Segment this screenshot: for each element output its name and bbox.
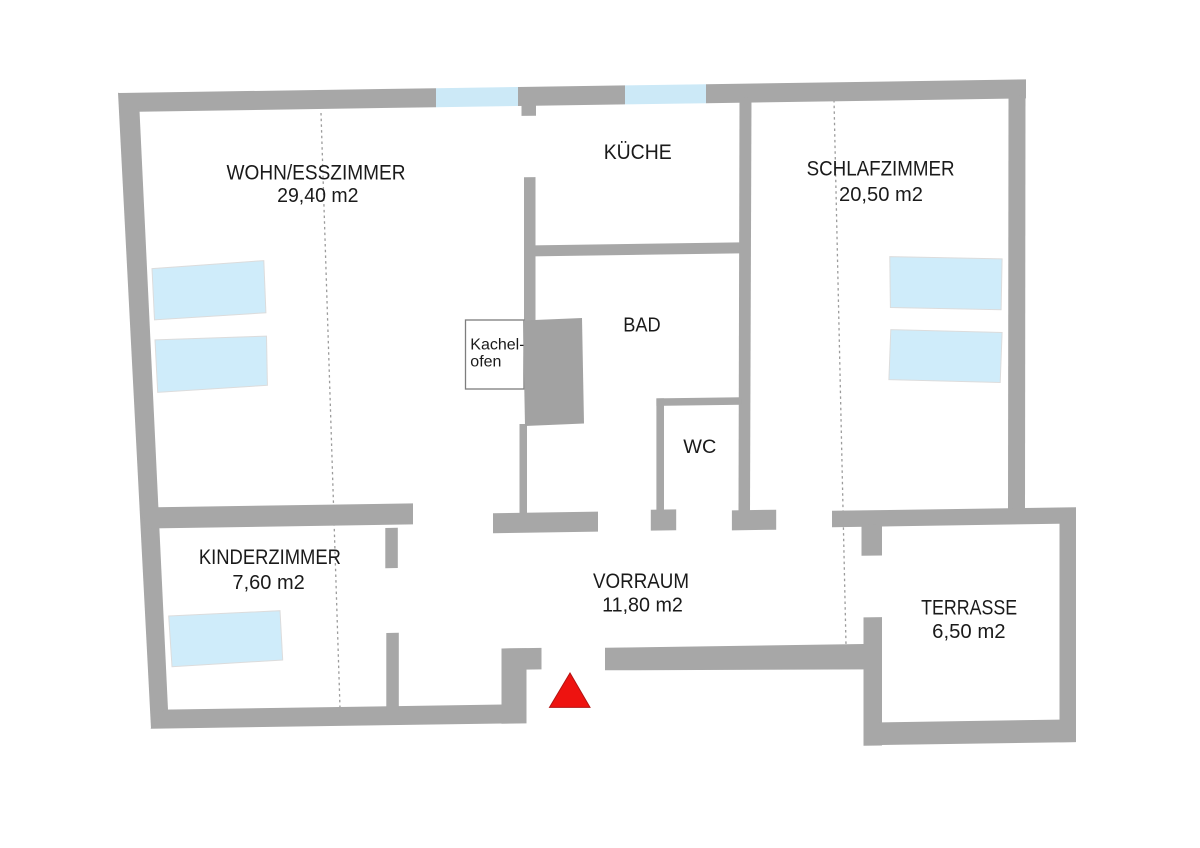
- svg-text:7,60 m2: 7,60 m2: [232, 572, 304, 594]
- svg-text:11,80 m2: 11,80 m2: [602, 595, 683, 617]
- svg-text:BAD: BAD: [623, 314, 660, 336]
- svg-text:29,40 m2: 29,40 m2: [277, 185, 358, 207]
- svg-text:ofen: ofen: [470, 353, 501, 370]
- svg-text:Kachel-: Kachel-: [470, 337, 524, 354]
- svg-text:VORRAUM: VORRAUM: [593, 570, 689, 593]
- svg-text:TERRASSE: TERRASSE: [921, 597, 1017, 620]
- svg-text:WC: WC: [683, 437, 716, 458]
- svg-text:WOHN/ESSZIMMER: WOHN/ESSZIMMER: [227, 162, 406, 185]
- svg-text:20,50 m2: 20,50 m2: [839, 184, 923, 206]
- svg-text:KINDERZIMMER: KINDERZIMMER: [199, 546, 341, 569]
- svg-text:6,50 m2: 6,50 m2: [932, 621, 1005, 643]
- svg-text:SCHLAFZIMMER: SCHLAFZIMMER: [807, 158, 955, 181]
- svg-text:KÜCHE: KÜCHE: [604, 141, 672, 164]
